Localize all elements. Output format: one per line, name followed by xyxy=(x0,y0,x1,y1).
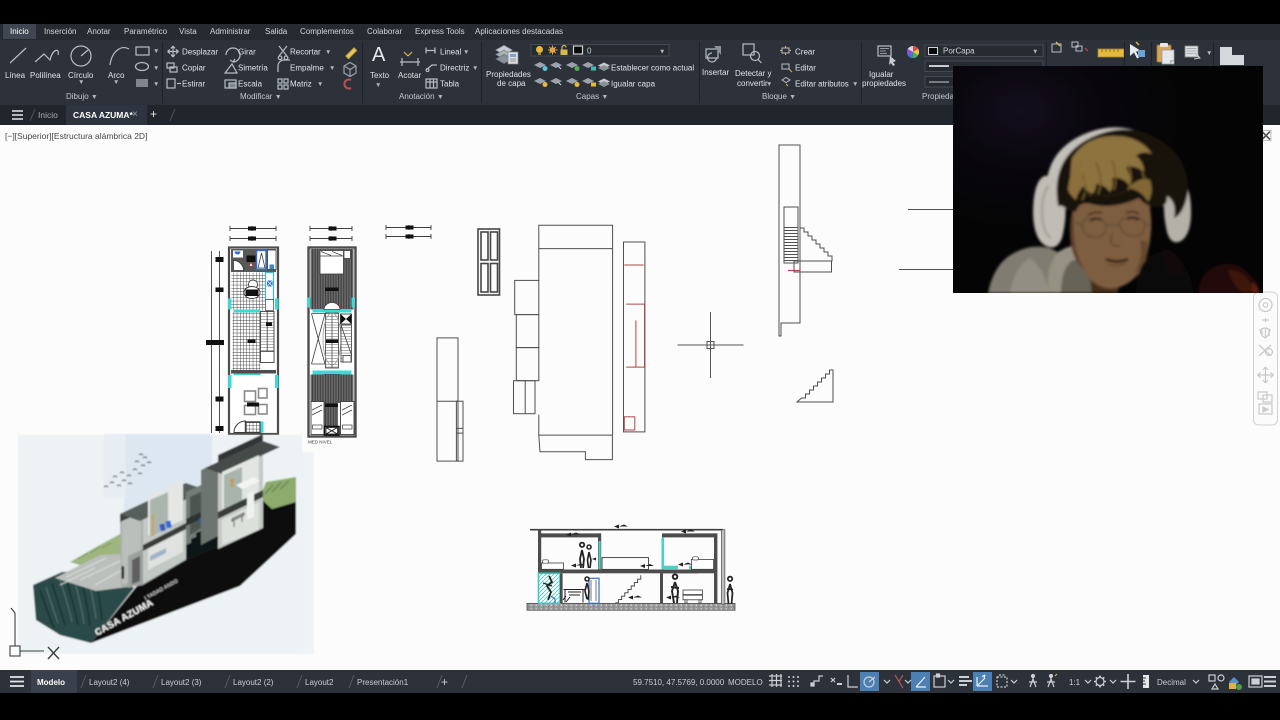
svg-text:▼: ▼ xyxy=(1032,49,1038,56)
svg-text:▼: ▼ xyxy=(766,81,772,88)
svg-text:▼: ▼ xyxy=(329,65,335,72)
svg-text:▼: ▼ xyxy=(659,49,665,56)
svg-text:Layout2 (2): Layout2 (2) xyxy=(233,678,274,687)
svg-text:[−][Superior][Estructura alámb: [−][Superior][Estructura alámbrica 2D] xyxy=(5,131,147,141)
svg-text:Establecer como actual: Establecer como actual xyxy=(611,64,694,73)
svg-text:▼: ▼ xyxy=(852,81,858,88)
svg-text:▼: ▼ xyxy=(153,81,159,88)
svg-text:59.7510, 47.5769, 0.0000: 59.7510, 47.5769, 0.0000 xyxy=(633,678,725,687)
svg-text:convertir: convertir xyxy=(737,79,768,88)
svg-text:▼: ▼ xyxy=(325,49,331,56)
svg-text:Propiedades: Propiedades xyxy=(486,70,531,79)
svg-text:Desplazar: Desplazar xyxy=(182,48,218,57)
svg-text:Crear: Crear xyxy=(795,48,815,57)
svg-text:propiedades: propiedades xyxy=(862,79,906,88)
svg-text:Insertar: Insertar xyxy=(702,68,729,77)
svg-text:Texto: Texto xyxy=(370,71,390,80)
svg-text:de capa: de capa xyxy=(497,79,526,88)
svg-text:▼: ▼ xyxy=(375,82,381,89)
svg-text:Detectar y: Detectar y xyxy=(735,69,771,78)
svg-text:Polilínea: Polilínea xyxy=(30,71,61,80)
svg-text:Girar: Girar xyxy=(238,48,256,57)
svg-text:Escala: Escala xyxy=(238,80,263,89)
svg-text:Editar atributos: Editar atributos xyxy=(795,80,849,89)
svg-text:Simetría: Simetría xyxy=(238,64,268,73)
svg-text:▼: ▼ xyxy=(78,79,84,86)
svg-text:PorCapa: PorCapa xyxy=(943,47,975,56)
svg-text:Directriz: Directriz xyxy=(440,64,469,73)
svg-text:▼: ▼ xyxy=(463,49,469,56)
svg-text:Recortar: Recortar xyxy=(290,48,321,57)
svg-text:▼: ▼ xyxy=(113,79,119,86)
svg-text:+: + xyxy=(441,675,448,689)
svg-text:Acotar: Acotar xyxy=(398,71,421,80)
svg-text:Empalme: Empalme xyxy=(290,64,324,73)
svg-text:0: 0 xyxy=(587,47,592,56)
svg-text:Igualar: Igualar xyxy=(869,70,894,79)
svg-text:Layout2 (4): Layout2 (4) xyxy=(89,678,130,687)
svg-text:▼: ▼ xyxy=(1206,50,1212,57)
svg-text:MED NIVEL: MED NIVEL xyxy=(308,440,333,445)
svg-text:Estirar: Estirar xyxy=(182,80,205,89)
svg-text:MODELO: MODELO xyxy=(728,678,763,687)
svg-text:Presentación1: Presentación1 xyxy=(357,678,409,687)
svg-text:Igualar capa: Igualar capa xyxy=(611,80,656,89)
svg-text:▼: ▼ xyxy=(153,48,159,55)
svg-text:Modelo: Modelo xyxy=(37,678,65,687)
svg-text:Matriz: Matriz xyxy=(290,80,312,89)
svg-text:Copiar: Copiar xyxy=(182,64,206,73)
svg-text:Línea: Línea xyxy=(5,71,26,80)
svg-text:Editar: Editar xyxy=(795,64,816,73)
svg-text:▼: ▼ xyxy=(317,81,323,88)
svg-text:Layout2: Layout2 xyxy=(305,678,334,687)
svg-text:1:1: 1:1 xyxy=(1069,678,1081,687)
svg-text:A: A xyxy=(372,44,386,66)
svg-text:▼: ▼ xyxy=(472,65,478,72)
svg-text:Layout2 (3): Layout2 (3) xyxy=(161,678,202,687)
svg-text:Tabla: Tabla xyxy=(440,80,460,89)
svg-text:Decimal: Decimal xyxy=(1157,678,1186,687)
svg-text:Lineal: Lineal xyxy=(440,48,462,57)
svg-text:▼: ▼ xyxy=(153,65,159,72)
